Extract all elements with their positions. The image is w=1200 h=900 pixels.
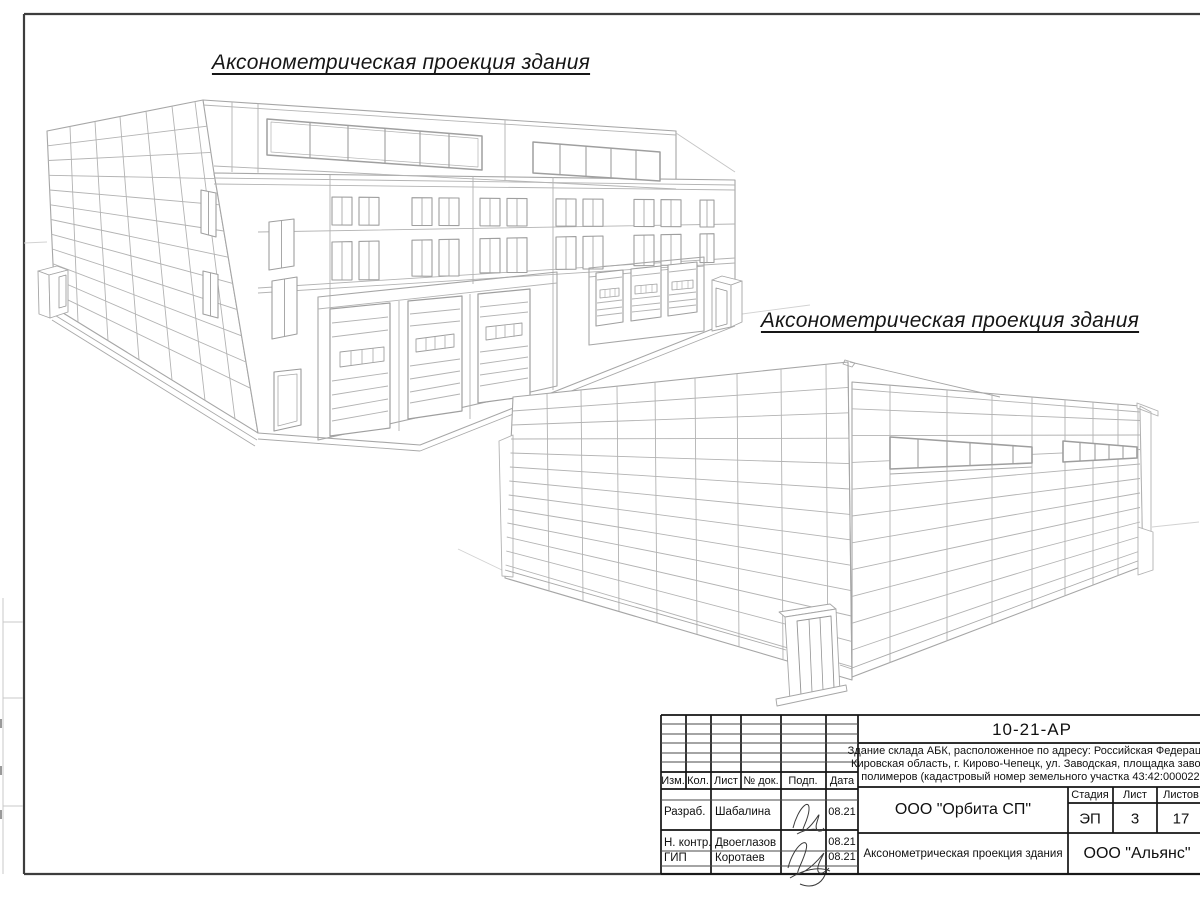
col-header-ndok: № док. xyxy=(743,775,778,787)
sheet-number: 3 xyxy=(1131,811,1139,828)
sig-row-date: 08.21 xyxy=(828,836,856,848)
object-description-line: Кировская область, г. Кирово-Чепецк, ул.… xyxy=(851,758,1200,770)
sheet-label: Лист xyxy=(1123,789,1147,801)
signature-korotaev-dvoeglazov xyxy=(788,843,830,886)
sig-row-name: Двоеглазов xyxy=(715,837,776,849)
sig-row-name: Коротаев xyxy=(715,852,765,864)
left-margin-column xyxy=(3,598,23,874)
col-header-list: Лист xyxy=(714,775,738,787)
col-header-data: Дата xyxy=(830,775,854,787)
object-description-line: Здание склада АБК, расположенное по адре… xyxy=(848,745,1200,757)
view-title-1: Аксонометрическая проекция здания xyxy=(212,51,590,75)
sig-row-name: Шабалина xyxy=(715,806,771,818)
stage-value: ЭП xyxy=(1079,811,1101,828)
col-header-kol: Кол. xyxy=(687,775,709,787)
sig-row-date: 08.21 xyxy=(828,851,856,863)
stage-label: Стадия xyxy=(1071,789,1109,801)
sig-row-date: 08.21 xyxy=(828,806,856,818)
left-margin-label-marks xyxy=(0,719,2,819)
sig-row-role: ГИП xyxy=(664,852,687,864)
col-header-podp: Подп. xyxy=(788,775,817,787)
designer-organization: ООО "Орбита СП" xyxy=(895,801,1031,819)
sig-row-role: Н. контр. xyxy=(664,837,711,849)
sheets-label: Листов xyxy=(1163,789,1199,801)
sig-row-role: Разраб. xyxy=(664,806,705,818)
drawing-sheet: { "drawing_titles": { "view1": "Аксономе… xyxy=(0,0,1200,900)
view-title-2: Аксонометрическая проекция здания xyxy=(761,309,1139,333)
client-organization: ООО "Альянс" xyxy=(1084,845,1191,863)
col-header-izm: Изм. xyxy=(661,775,685,787)
sheets-total: 17 xyxy=(1173,811,1190,828)
b1-left-vestibule xyxy=(38,266,68,318)
object-description-line: полимеров (кадастровый номер земельного … xyxy=(861,771,1200,783)
b1-right-vestibule xyxy=(712,276,742,331)
document-code: 10-21-АР xyxy=(992,720,1072,740)
sheet-title: Аксонометрическая проекция здания xyxy=(863,848,1062,860)
building-2-axonometric-drawing xyxy=(458,360,1199,706)
